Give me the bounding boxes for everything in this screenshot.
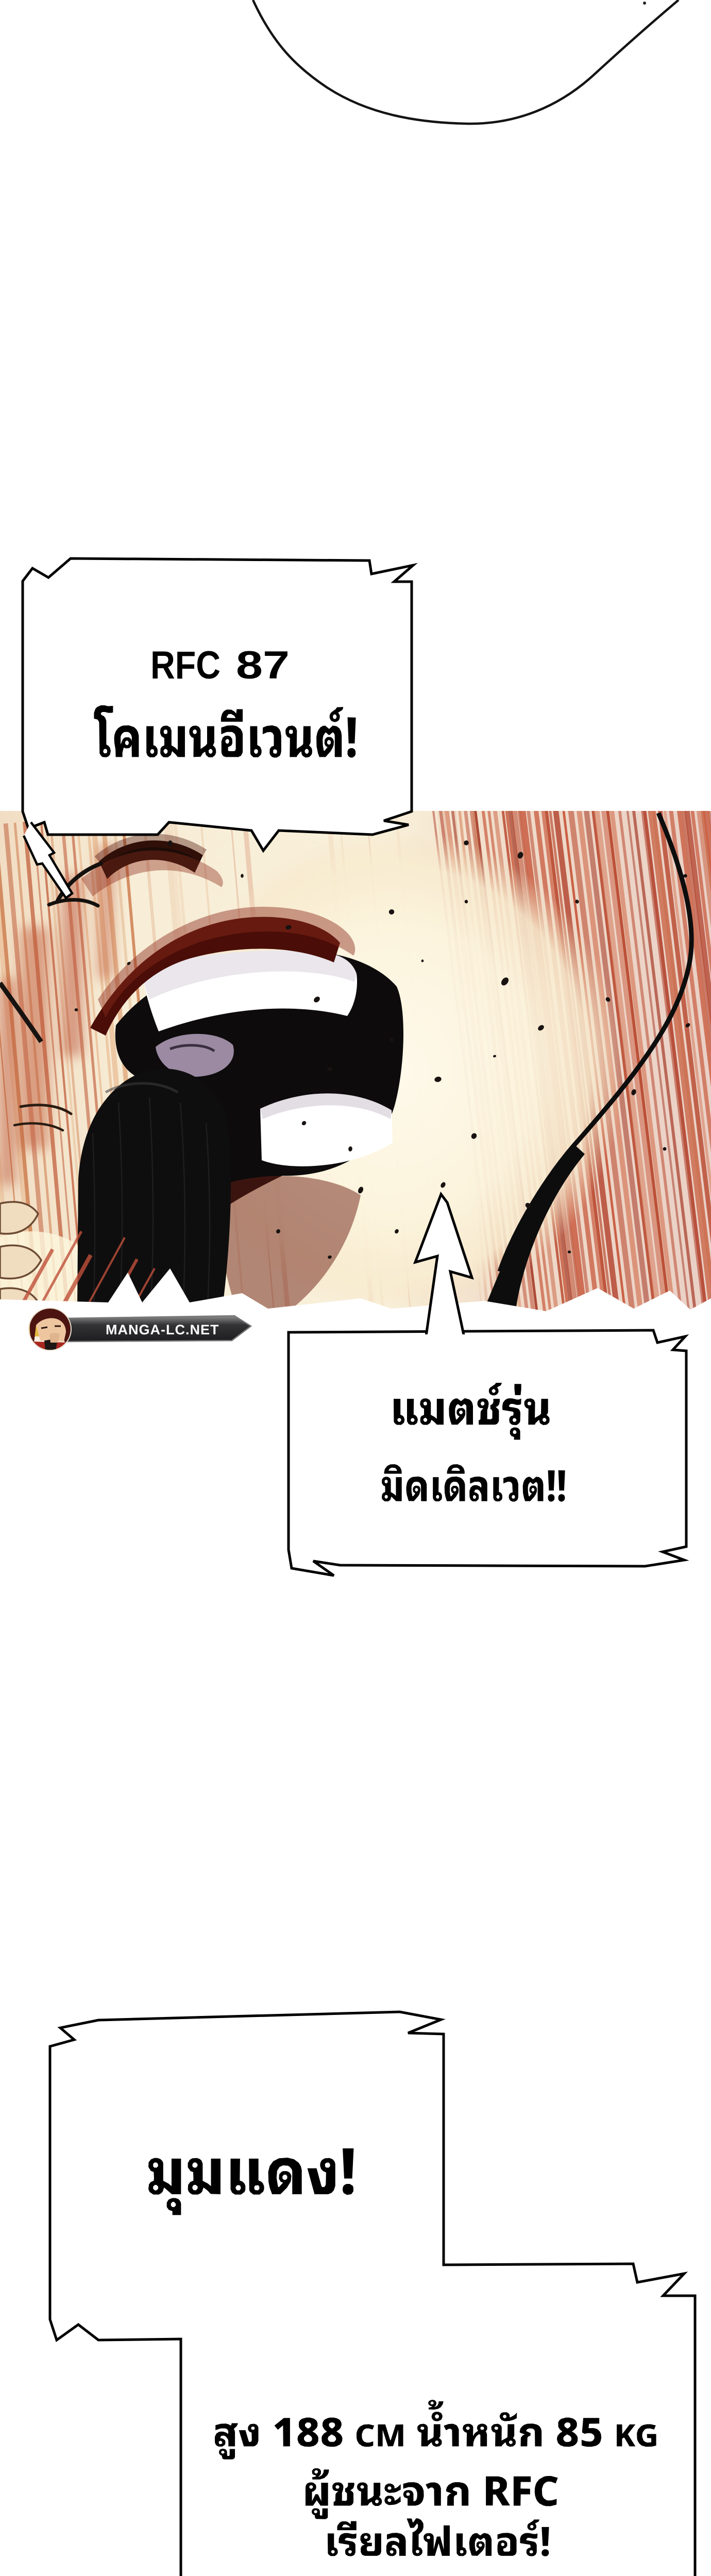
svg-text:87: 87 — [236, 643, 290, 687]
svg-text:RFC: RFC — [150, 643, 221, 687]
svg-text:MANGA-LC.NET: MANGA-LC.NET — [106, 1322, 219, 1337]
